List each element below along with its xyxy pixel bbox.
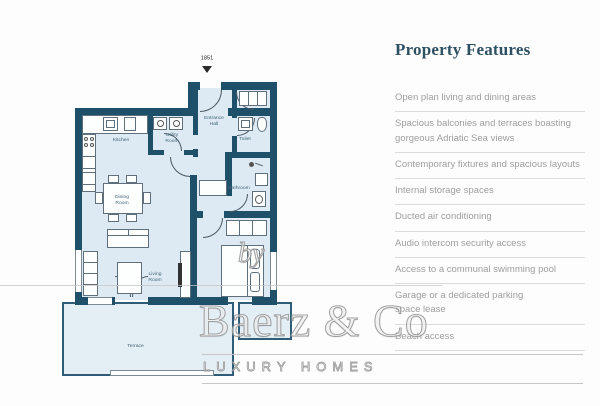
toilet-sink-basin [241, 120, 250, 128]
shelf-line [84, 273, 97, 274]
wall [193, 88, 198, 135]
washer-drum [157, 120, 164, 127]
wardrobe-divider [239, 221, 240, 235]
feature-item: Internal storage spaces [395, 179, 585, 205]
wall [197, 211, 203, 218]
wall [270, 82, 277, 252]
wall [224, 211, 277, 218]
stove-burner [84, 137, 88, 141]
feature-item: Audio intercom security access [395, 232, 585, 258]
wall [225, 152, 277, 158]
wardrobe [226, 220, 267, 236]
kitchen-cabinet [82, 156, 96, 169]
feature-item: Open plan living and dining areas [395, 86, 585, 112]
feature-item: Ducted air conditioning [395, 205, 585, 231]
wall [221, 82, 277, 90]
terrace-area [62, 302, 234, 376]
dining-chair [108, 214, 119, 222]
bed-headboard-line [247, 246, 248, 296]
sofa-cushion-line [128, 230, 129, 235]
window [88, 297, 112, 305]
bed-pillow [250, 249, 260, 269]
stove-burner [90, 137, 94, 141]
entrance-arrow-icon [202, 66, 212, 73]
terrace-railing [110, 370, 214, 376]
stove-burner [90, 143, 94, 147]
property-listing-page: { "plan": { "entrance_number": "1851", "… [0, 0, 600, 406]
dining-chair [126, 214, 137, 222]
bathroom-wc-bowl [255, 195, 263, 204]
wall [184, 150, 198, 155]
panel-title: Property Features [395, 40, 585, 60]
closet-divider [248, 92, 249, 105]
property-features-panel: Property Features Open plan living and d… [395, 40, 585, 351]
wall [148, 150, 164, 155]
shelf-line [84, 262, 97, 263]
dining-room-label: Dining Room [107, 194, 138, 206]
feature-item: Beach access [395, 325, 585, 351]
shelf-line [84, 284, 97, 285]
living-room-label: Living Room [140, 271, 171, 283]
kitchen-cabinet [82, 172, 96, 185]
entrance-closet [239, 91, 267, 106]
wall [252, 297, 277, 305]
bed-pillow [250, 272, 260, 292]
entrance-number-label: 1851 [193, 54, 221, 61]
dining-chair [126, 175, 137, 183]
dining-chair [108, 175, 119, 183]
dining-chair [95, 192, 103, 204]
kitchen-sink-basin [106, 120, 115, 128]
feature-item: Contemporary fixtures and spacious layou… [395, 153, 585, 179]
coffee-table [117, 262, 142, 294]
sofa-back-line [108, 235, 148, 236]
window [270, 252, 277, 290]
feature-item: Spacious balconies and terraces boasting… [395, 112, 585, 153]
wall [148, 297, 228, 305]
window [75, 250, 82, 292]
dining-chair [143, 192, 151, 204]
tv-screen [178, 263, 182, 287]
stove-burner [84, 143, 88, 147]
toilet-label: Toilet [230, 136, 261, 142]
terrace-label: Terrace [118, 343, 152, 349]
utility-room-label: Utility Room [157, 132, 188, 144]
closet-divider [257, 92, 258, 105]
kitchen-label: Kitchen [106, 137, 137, 143]
bathroom-sink [255, 173, 268, 186]
small-balcony-area [238, 302, 292, 340]
entrance-hall-label: Entrance Hall [199, 115, 230, 127]
features-list: Open plan living and dining areas Spacio… [395, 86, 585, 351]
shower-head [249, 162, 254, 167]
dryer-drum [173, 120, 180, 127]
kitchen-appliance [124, 117, 136, 131]
wardrobe-divider [252, 221, 253, 235]
wall [190, 175, 197, 297]
feature-item: Garage or a dedicated parking space leas… [395, 284, 585, 325]
toilet-wc [257, 117, 267, 132]
feature-item: Access to a communal swimming pool [395, 258, 585, 284]
bathroom-label: Bathroom [224, 185, 255, 191]
